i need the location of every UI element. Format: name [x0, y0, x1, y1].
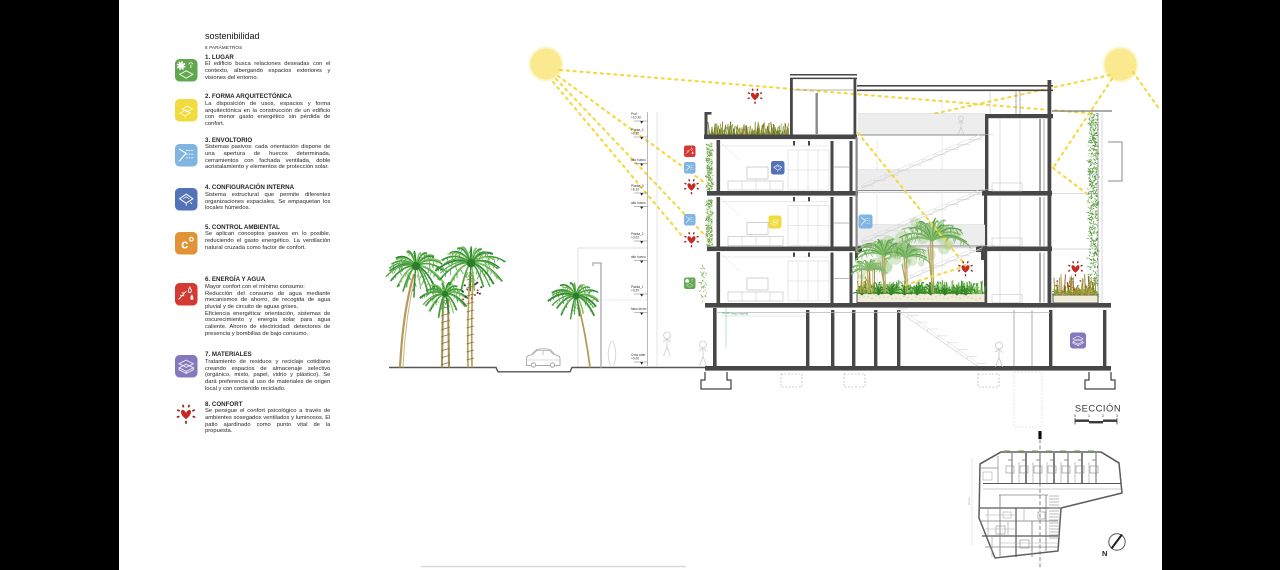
svg-text:1: 1 [1088, 413, 1091, 418]
svg-text:3: 3 [1116, 413, 1119, 418]
svg-text:N: N [1102, 549, 1107, 558]
svg-text:2: 2 [1102, 413, 1105, 418]
svg-text:+6.10: +6.10 [631, 188, 639, 192]
svg-text:c: c [181, 236, 188, 251]
svg-text:alto hueco: alto hueco [631, 201, 646, 205]
svg-text:SECCIÓN: SECCIÓN [1075, 403, 1121, 414]
svg-text:riego vegetal: riego vegetal [731, 312, 749, 316]
svg-text:falso techo: falso techo [631, 307, 647, 311]
svg-text:planta: planta [967, 497, 971, 505]
svg-text:+0.20: +0.20 [631, 289, 639, 293]
svg-text:alto hueco: alto hueco [631, 255, 646, 259]
svg-text:alto hueco: alto hueco [631, 158, 646, 162]
svg-text:+3.02: +3.02 [631, 236, 639, 240]
svg-text:+9.15: +9.15 [631, 132, 639, 136]
svg-text:+10.30: +10.30 [631, 116, 641, 120]
svg-text:+0.00: +0.00 [631, 357, 639, 361]
svg-text:0: 0 [1074, 413, 1077, 418]
